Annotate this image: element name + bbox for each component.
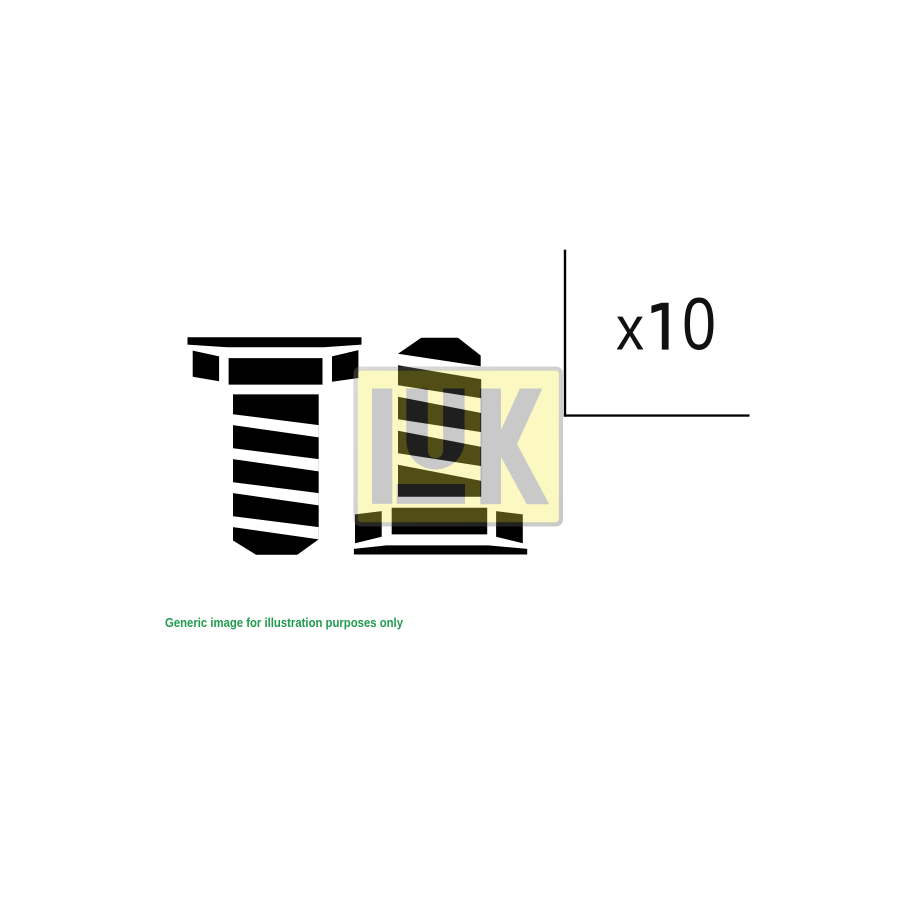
svg-text:Generic image for illustration: Generic image for illustration purposes …: [165, 615, 404, 630]
svg-text:x: x: [616, 295, 644, 364]
svg-text:0: 0: [682, 283, 716, 366]
